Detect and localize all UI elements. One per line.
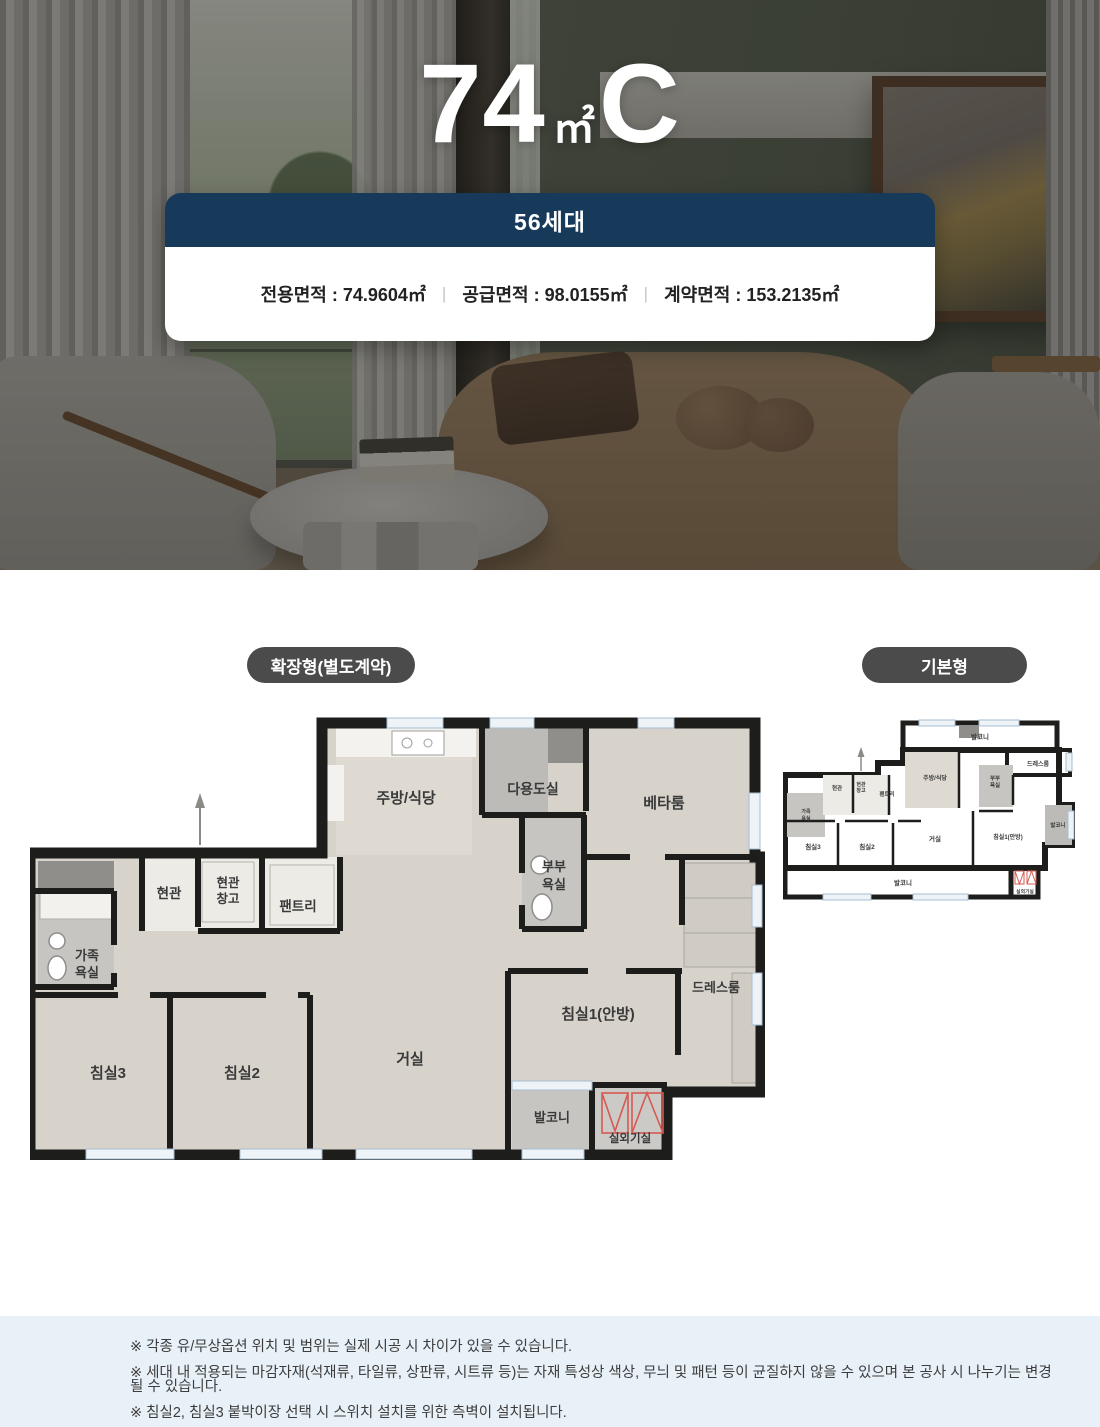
unit-info-card: 56세대 전용면적 : 74.9604㎡ | 공급면적 : 98.0155㎡ |… <box>165 193 935 341</box>
room-label-bedroom1: 침실1(안방) <box>993 833 1022 841</box>
plan-type-badge-basic[interactable]: 기본형 <box>862 647 1027 683</box>
room-label-living: 거실 <box>396 1051 424 1068</box>
room-label-couple-bath: 욕실 <box>542 877 566 892</box>
entry-arrow-icon <box>858 747 865 771</box>
room-label-dress-room: 드레스룸 <box>1027 760 1050 768</box>
entry-arrow-icon <box>195 793 205 845</box>
floor-plans-section: 확장형(별도계약) 기본형 <box>0 570 1100 1316</box>
floor-plan-expanded: 주방/식당 다용도실 베타룸 부부 욕실 현관 현관 창고 팬트리 가족 욕실 … <box>30 715 765 1160</box>
room-label-kitchen: 주방/식당 <box>376 789 436 807</box>
area-contract: 계약면적 : 153.2135㎡ <box>664 281 839 307</box>
room-label-kitchen: 주방/식당 <box>923 774 947 782</box>
room-label-family-bath: 가족 <box>801 808 811 815</box>
title-type-letter: C <box>599 48 681 160</box>
room-label-balcony: 발코니 <box>534 1110 570 1125</box>
note-line: ※ 세대 내 적용되는 마감자재(석재류, 타일류, 상판류, 시트류 등)는 … <box>130 1366 1060 1395</box>
floors <box>30 723 761 1155</box>
room-label-family-bath: 욕실 <box>75 965 99 980</box>
note-line: ※ 각종 유/무상옵션 위치 및 범위는 실제 시공 시 차이가 있을 수 있습… <box>130 1340 1060 1355</box>
room-label-couple-bath: 부부 <box>542 859 566 874</box>
floor-plan-basic: 발코니 드레스룸 주방/식당 부부 욕실 현관 현관 창고 팬트리 가족 욕실 … <box>783 713 1088 908</box>
note-line: ※ 침실2, 침실3 붙박이장 선택 시 스위치 설치를 위한 측벽이 설치됩니… <box>130 1406 1060 1421</box>
room-label-ac-room: 실외기실 <box>609 1131 651 1145</box>
room-label-couple-bath: 욕실 <box>990 781 1000 789</box>
room-label-utility: 다용도실 <box>507 781 559 797</box>
notes-section: ※ 각종 유/무상옵션 위치 및 범위는 실제 시공 시 차이가 있을 수 있습… <box>0 1316 1100 1427</box>
area-divider: | <box>644 284 648 304</box>
ac-louver-marks <box>1015 871 1036 884</box>
room-label-family-bath: 욕실 <box>801 815 811 822</box>
room-label-beta-room: 베타룸 <box>643 795 685 812</box>
households-badge: 56세대 <box>165 193 935 247</box>
room-label-balcony: 발코니 <box>894 878 912 887</box>
room-label-entrance-storage: 창고 <box>216 891 240 906</box>
title-number: 74 <box>419 48 546 160</box>
area-exclusive: 전용면적 : 74.9604㎡ <box>261 281 426 307</box>
room-label-balcony: 발코니 <box>971 732 989 741</box>
room-label-ac-room: 실외기실 <box>1016 888 1034 895</box>
room-label-pantry: 팬트리 <box>279 899 316 914</box>
kitchen-fixtures <box>392 731 444 755</box>
room-label-balcony: 발코니 <box>1050 821 1065 829</box>
room-label-pantry: 팬트리 <box>879 790 894 798</box>
area-supply: 공급면적 : 98.0155㎡ <box>462 281 627 307</box>
plan-type-badge-expanded[interactable]: 확장형(별도계약) <box>247 647 415 683</box>
room-label-dress-room: 드레스룸 <box>692 980 740 995</box>
room-label-bedroom3: 침실3 <box>805 842 821 851</box>
room-label-bedroom3: 침실3 <box>90 1065 126 1082</box>
room-label-entrance: 현관 <box>832 784 842 792</box>
room-label-entrance: 현관 <box>157 885 182 901</box>
room-label-entrance-storage: 현관 <box>216 875 240 890</box>
room-label-family-bath: 가족 <box>75 948 99 963</box>
room-label-entrance-storage: 현관 <box>856 781 866 788</box>
room-label-bedroom2: 침실2 <box>224 1065 260 1082</box>
room-label-couple-bath: 부부 <box>990 774 1000 782</box>
room-label-entrance-storage: 창고 <box>856 787 866 794</box>
room-label-living: 거실 <box>929 834 941 843</box>
unit-type-title: 74 ㎡ C <box>0 48 1100 160</box>
hero-section: 74 ㎡ C 56세대 전용면적 : 74.9604㎡ | 공급면적 : 98.… <box>0 0 1100 570</box>
area-info-row: 전용면적 : 74.9604㎡ | 공급면적 : 98.0155㎡ | 계약면적… <box>165 247 935 341</box>
title-unit: ㎡ <box>553 107 595 149</box>
area-divider: | <box>442 284 446 304</box>
room-label-bedroom2: 침실2 <box>859 842 875 851</box>
room-label-bedroom1: 침실1(안방) <box>561 1005 635 1023</box>
